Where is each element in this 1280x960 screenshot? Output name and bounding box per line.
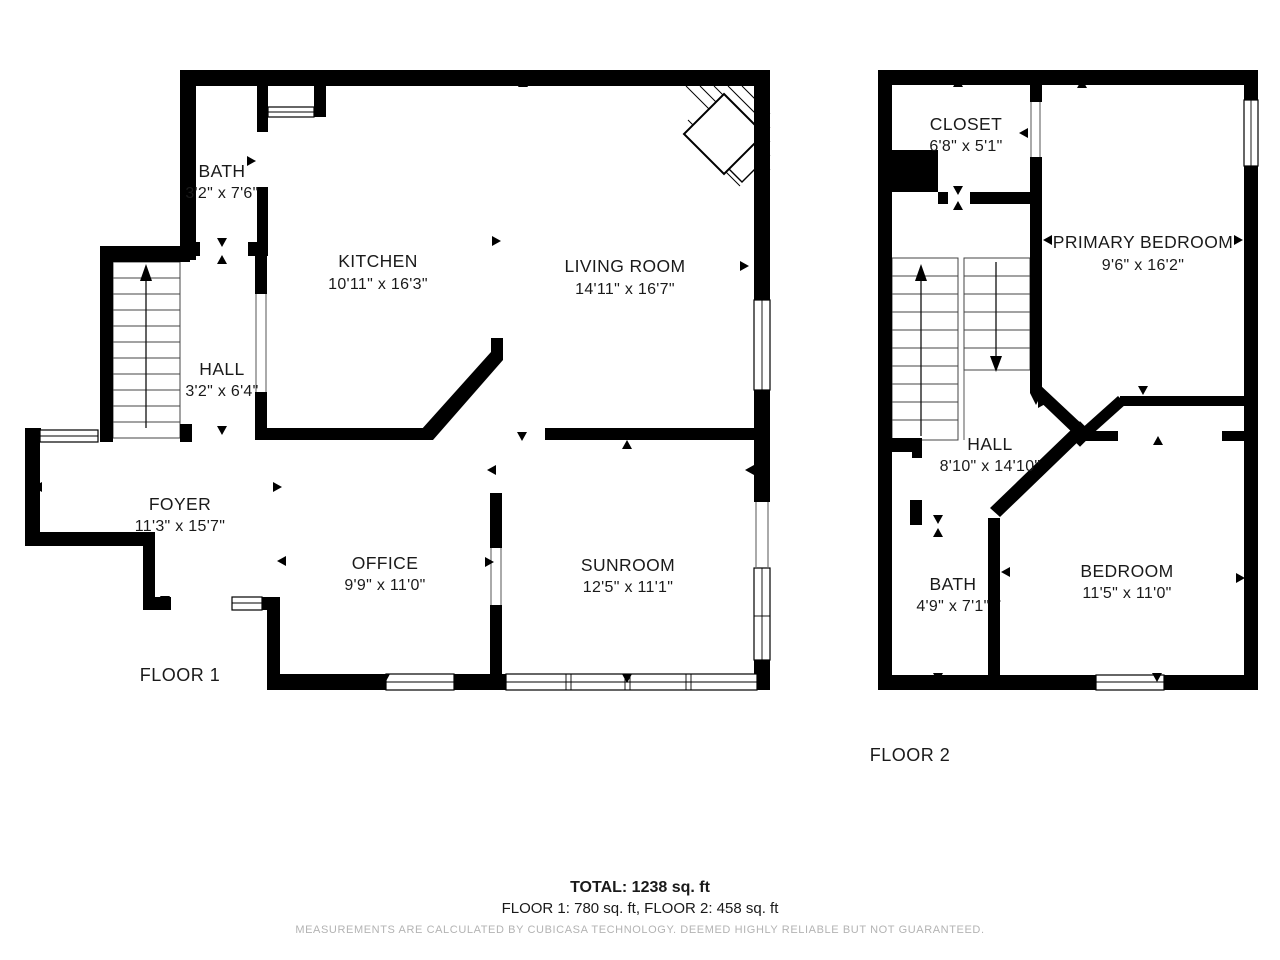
room-dims-hall2: 8'10" x 14'10" <box>940 458 1041 475</box>
floor1-title: FLOOR 1 <box>140 665 221 685</box>
room-label-bath1: BATH <box>199 161 246 181</box>
room-label-bath2: BATH <box>930 574 977 594</box>
room-dims-foyer: 11'3" x 15'7" <box>135 518 225 535</box>
room-dims-kitchen: 10'11" x 16'3" <box>328 276 428 293</box>
total-area-text: TOTAL: 1238 sq. ft <box>0 879 1280 897</box>
disclaimer-text: MEASUREMENTS ARE CALCULATED BY CUBICASA … <box>0 924 1280 936</box>
room-dims-bath2: 4'9" x 7'1" <box>916 598 989 615</box>
room-label-living-room: LIVING ROOM <box>564 256 685 276</box>
room-label-bedroom2: BEDROOM <box>1080 561 1173 581</box>
room-label-kitchen: KITCHEN <box>338 251 418 271</box>
room-label-closet: CLOSET <box>930 114 1002 134</box>
floor1-plan: BATH 3'2" x 7'6" KITCHEN 10'11" x 16'3" … <box>25 70 770 690</box>
room-dims-sunroom: 12'5" x 11'1" <box>583 579 673 596</box>
floor2-title: FLOOR 2 <box>870 745 951 765</box>
room-dims-hall1: 3'2" x 6'4" <box>185 383 258 400</box>
room-dims-primary-bedroom: 9'6" x 16'2" <box>1102 257 1184 274</box>
room-label-hall1: HALL <box>199 359 244 379</box>
room-dims-office: 9'9" x 11'0" <box>344 577 425 594</box>
room-label-hall2: HALL <box>967 434 1012 454</box>
staircase-floor2 <box>892 258 1030 440</box>
room-dims-closet: 6'8" x 5'1" <box>929 138 1002 155</box>
room-label-primary-bedroom: PRIMARY BEDROOM <box>1053 232 1233 252</box>
room-label-sunroom: SUNROOM <box>581 555 675 575</box>
floor2-plan: CLOSET 6'8" x 5'1" PRIMARY BEDROOM 9'6" … <box>870 70 1258 765</box>
floorplan-page: BATH 3'2" x 7'6" KITCHEN 10'11" x 16'3" … <box>0 0 1280 960</box>
room-dims-bedroom2: 11'5" x 11'0" <box>1082 585 1171 602</box>
floor-areas-text: FLOOR 1: 780 sq. ft, FLOOR 2: 458 sq. ft <box>0 900 1280 917</box>
room-dims-living-room: 14'11" x 16'7" <box>575 281 675 298</box>
floor1-labels: BATH 3'2" x 7'6" KITCHEN 10'11" x 16'3" … <box>135 161 686 685</box>
room-label-office: OFFICE <box>352 553 419 573</box>
room-dims-bath1: 3'2" x 7'6" <box>185 185 258 202</box>
floorplan-drawing: BATH 3'2" x 7'6" KITCHEN 10'11" x 16'3" … <box>0 0 1280 960</box>
staircase-floor1 <box>113 262 180 438</box>
room-label-foyer: FOYER <box>149 494 211 514</box>
